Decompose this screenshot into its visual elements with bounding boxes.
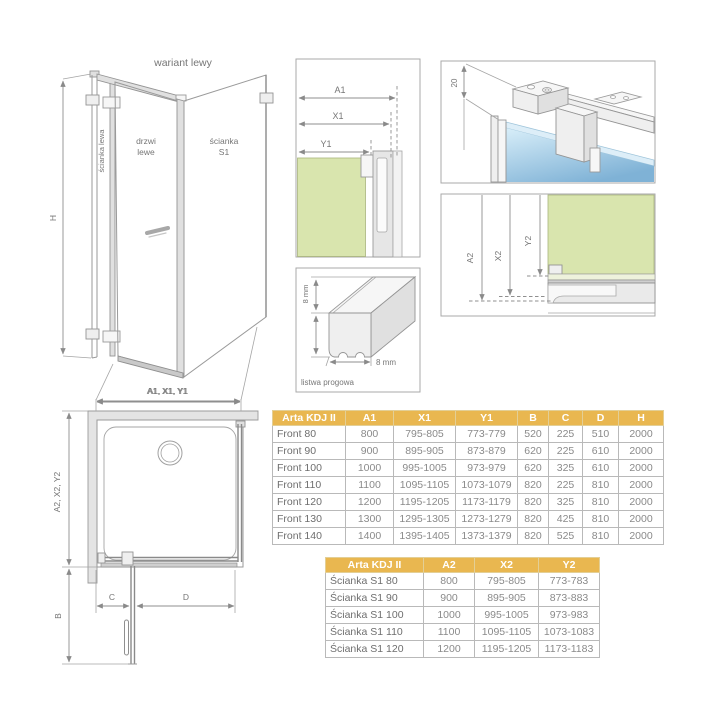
row-label-cell: Ścianka S1 80 — [326, 573, 424, 590]
value-cell: 973-979 — [456, 460, 518, 477]
detail-side-profile: A2 X2 Y2 — [441, 194, 655, 316]
column-header: H — [619, 411, 664, 426]
wall-hinge-bottom — [86, 329, 99, 339]
value-cell: 225 — [549, 477, 583, 494]
bottom-clamp — [549, 265, 562, 274]
profile-strip-2 — [548, 280, 655, 283]
table-row: Front 11011001095-11051073-1079820225810… — [273, 477, 664, 494]
value-cell: 2000 — [619, 511, 664, 528]
s1-label-line1: ścianka — [210, 136, 239, 146]
dim-y2-label: Y2 — [523, 236, 533, 247]
profile-strip-1 — [548, 274, 655, 280]
table-row: Front 13013001295-13051273-1279820425810… — [273, 511, 664, 528]
column-header: Arta KDJ II — [273, 411, 346, 426]
value-cell: 1295-1305 — [394, 511, 456, 528]
technical-drawing-page: wariant lewy H drzwi lewe ścianka lewa — [0, 0, 720, 720]
value-cell: 1100 — [346, 477, 394, 494]
wall-hinge-top — [86, 95, 99, 105]
table-row: Front 1001000995-1005973-979620325610200… — [273, 460, 664, 477]
value-cell: 2000 — [619, 460, 664, 477]
detail-hanger-bracket: 20 — [441, 61, 655, 183]
value-cell: 1000 — [424, 607, 475, 624]
column-header: Arta KDJ II — [326, 558, 424, 573]
value-cell: 810 — [583, 511, 619, 528]
table-header-row: Arta KDJ IIA2X2Y2 — [326, 558, 600, 573]
value-cell: 1273-1279 — [456, 511, 518, 528]
value-cell: 2000 — [619, 528, 664, 545]
value-cell: 1095-1105 — [475, 624, 539, 641]
threshold-front-face — [329, 313, 371, 357]
value-cell: 995-1005 — [394, 460, 456, 477]
screw-hole — [528, 85, 535, 89]
row-label-cell: Front 130 — [273, 511, 346, 528]
plan-c-dim-label: C — [109, 592, 115, 602]
value-cell: 773-779 — [456, 426, 518, 443]
glass-panel-green — [298, 158, 366, 257]
glass-clamp — [361, 155, 374, 177]
value-cell: 820 — [518, 511, 549, 528]
dim-a1-label: A1 — [334, 85, 345, 95]
plan-hinge-left — [98, 553, 105, 563]
column-header: X1 — [394, 411, 456, 426]
corner-post — [177, 99, 184, 377]
value-cell: 225 — [549, 443, 583, 460]
column-header: C — [549, 411, 583, 426]
row-label-cell: Ścianka S1 100 — [326, 607, 424, 624]
value-cell: 773-783 — [539, 573, 600, 590]
value-cell: 820 — [518, 528, 549, 545]
h-dimension-label: H — [48, 215, 58, 221]
value-cell: 1173-1179 — [456, 494, 518, 511]
table-row: Front 14014001395-14051373-1379820525810… — [273, 528, 664, 545]
table-row: Front 12012001195-12051173-1179820325810… — [273, 494, 664, 511]
side-panel-label: ścianka lewa — [97, 129, 106, 173]
table-row: Front 80800795-805773-7795202255102000 — [273, 426, 664, 443]
front-sizes-table: Arta KDJ IIA1X1Y1BCDHFront 80800795-8057… — [272, 410, 664, 545]
iso-view-title: wariant lewy — [153, 57, 213, 69]
dim-x2-label: X2 — [493, 251, 503, 262]
value-cell: 810 — [583, 528, 619, 545]
column-header: X2 — [475, 558, 539, 573]
table-row: Front 90900895-905873-8796202256102000 — [273, 443, 664, 460]
plan-d-dim-label: D — [183, 592, 189, 602]
value-cell: 810 — [583, 494, 619, 511]
value-cell: 895-905 — [475, 590, 539, 607]
column-header: D — [583, 411, 619, 426]
value-cell: 800 — [424, 573, 475, 590]
value-cell: 873-883 — [539, 590, 600, 607]
row-label-cell: Ścianka S1 120 — [326, 641, 424, 658]
dim-y1-label: Y1 — [320, 139, 331, 149]
value-cell: 2000 — [619, 426, 664, 443]
s1-panel — [184, 75, 266, 377]
front-bottom-profile — [101, 563, 237, 567]
threshold-caption: listwa progowa — [301, 378, 354, 387]
value-cell: 873-879 — [456, 443, 518, 460]
s1-label-line2: S1 — [219, 147, 230, 157]
column-header: A2 — [424, 558, 475, 573]
value-cell: 620 — [518, 460, 549, 477]
value-cell: 900 — [424, 590, 475, 607]
value-cell: 1100 — [424, 624, 475, 641]
plan-view-drawing: A1, X1, Y1 A2, X2, Y2 B C D — [52, 386, 258, 664]
table-header-row: Arta KDJ IIA1X1Y1BCDH — [273, 411, 664, 426]
column-header: A1 — [346, 411, 394, 426]
value-cell: 995-1005 — [475, 607, 539, 624]
value-cell: 425 — [549, 511, 583, 528]
plan-width-dim-label: A1, X1, Y1 — [147, 386, 188, 396]
value-cell: 900 — [346, 443, 394, 460]
table-row: Ścianka S1 11011001095-11051073-1083 — [326, 624, 600, 641]
screw-hole — [624, 97, 629, 100]
dim-20-label: 20 — [450, 78, 459, 87]
plan-door-handle — [125, 620, 129, 655]
value-cell: 795-805 — [475, 573, 539, 590]
door-handle — [147, 228, 168, 233]
column-header: Y1 — [456, 411, 518, 426]
door-label-line1: drzwi — [136, 136, 156, 146]
value-cell: 1395-1405 — [394, 528, 456, 545]
detail-wall-profile-top: A1 X1 Y1 — [296, 59, 420, 257]
value-cell: 1195-1205 — [394, 494, 456, 511]
door-label-line2: lewe — [137, 147, 155, 157]
iso-view-drawing: wariant lewy H drzwi lewe ścianka lewa — [48, 57, 273, 402]
value-cell: 1373-1379 — [456, 528, 518, 545]
value-cell: 810 — [583, 477, 619, 494]
row-label-cell: Ścianka S1 110 — [326, 624, 424, 641]
value-cell: 1073-1079 — [456, 477, 518, 494]
value-cell: 225 — [549, 426, 583, 443]
s1-wall-bracket — [260, 93, 273, 103]
plan-door-pivot — [122, 552, 133, 565]
value-cell: 895-905 — [394, 443, 456, 460]
value-cell: 325 — [549, 494, 583, 511]
value-cell: 325 — [549, 460, 583, 477]
value-cell: 620 — [518, 443, 549, 460]
row-label-cell: Ścianka S1 90 — [326, 590, 424, 607]
value-cell: 1073-1083 — [539, 624, 600, 641]
shower-tray — [97, 420, 243, 567]
table-row: Ścianka S1 80800795-805773-783 — [326, 573, 600, 590]
dim-x1-label: X1 — [332, 111, 343, 121]
plan-b-dim-label: B — [53, 613, 63, 619]
value-cell: 610 — [583, 443, 619, 460]
value-cell: 525 — [549, 528, 583, 545]
glass-clamp-front — [556, 108, 584, 162]
threshold-bar — [118, 356, 183, 378]
value-cell: 1095-1105 — [394, 477, 456, 494]
value-cell: 1200 — [424, 641, 475, 658]
row-label-cell: Front 110 — [273, 477, 346, 494]
row-label-cell: Front 120 — [273, 494, 346, 511]
row-label-cell: Front 100 — [273, 460, 346, 477]
screw-hole — [611, 96, 616, 99]
value-cell: 795-805 — [394, 426, 456, 443]
threshold-height-dim-label: 8 mm — [301, 285, 310, 304]
value-cell: 1400 — [346, 528, 394, 545]
value-cell: 1173-1183 — [539, 641, 600, 658]
glass-clamp-tab — [590, 148, 600, 172]
value-cell: 820 — [518, 477, 549, 494]
wall-channel-profile — [491, 116, 498, 182]
value-cell: 1000 — [346, 460, 394, 477]
value-cell: 800 — [346, 426, 394, 443]
threshold-width-dim-label: 8 mm — [376, 358, 396, 367]
value-cell: 1200 — [346, 494, 394, 511]
value-cell: 820 — [518, 494, 549, 511]
row-label-cell: Front 80 — [273, 426, 346, 443]
value-cell: 510 — [583, 426, 619, 443]
value-cell: 520 — [518, 426, 549, 443]
table-row: Ścianka S1 1001000995-1005973-983 — [326, 607, 600, 624]
value-cell: 1300 — [346, 511, 394, 528]
value-cell: 2000 — [619, 443, 664, 460]
row-label-cell: Front 140 — [273, 528, 346, 545]
column-header: Y2 — [539, 558, 600, 573]
column-header: B — [518, 411, 549, 426]
value-cell: 2000 — [619, 477, 664, 494]
dim-a2-label: A2 — [465, 253, 475, 264]
s1-panel-sizes-table: Arta KDJ IIA2X2Y2Ścianka S1 80800795-805… — [325, 557, 600, 658]
value-cell: 1195-1205 — [475, 641, 539, 658]
detail-threshold-strip: 8 mm 8 mm listwa progowa — [296, 268, 420, 392]
door-hinge-profile — [110, 80, 115, 356]
value-cell: 2000 — [619, 494, 664, 511]
plan-depth-dim-label: A2, X2, Y2 — [52, 471, 62, 512]
glass-panel-green-side — [548, 195, 654, 274]
door-hinge-plate-top — [103, 97, 120, 108]
value-cell: 973-983 — [539, 607, 600, 624]
row-label-cell: Front 90 — [273, 443, 346, 460]
value-cell: 610 — [583, 460, 619, 477]
table-row: Ścianka S1 90900895-905873-883 — [326, 590, 600, 607]
table-row: Ścianka S1 12012001195-12051173-1183 — [326, 641, 600, 658]
